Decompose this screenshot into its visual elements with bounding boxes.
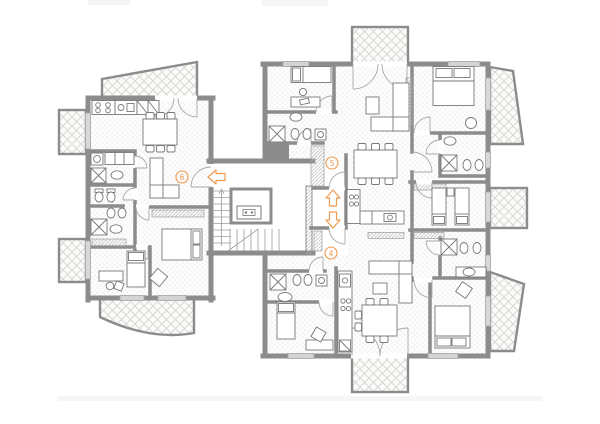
- floor-plan-canvas: 6 5 4: [0, 0, 600, 424]
- kitchen-sink-icon: [360, 211, 404, 224]
- single-bed-icon: [432, 188, 446, 225]
- window: [448, 62, 480, 67]
- wardrobe-icon: [314, 231, 322, 251]
- balcony: [59, 110, 86, 154]
- window: [288, 354, 314, 359]
- stove-icon: [92, 101, 115, 115]
- armchair-icon: [466, 118, 477, 129]
- window: [486, 192, 491, 222]
- hatched-wall: [306, 186, 312, 255]
- window: [486, 78, 491, 110]
- window: [86, 241, 91, 279]
- sink-icon: [444, 137, 456, 145]
- wardrobe-icon: [311, 146, 324, 186]
- wardrobe-icon: [368, 233, 404, 239]
- balcony: [352, 27, 408, 64]
- double-bed-icon: [162, 229, 202, 260]
- shower-icon: [441, 155, 457, 171]
- window: [486, 152, 491, 168]
- bathroom-counter-icon: [105, 153, 134, 165]
- shower-icon: [270, 274, 286, 290]
- wardrobe-icon: [152, 210, 204, 217]
- balcony: [102, 62, 197, 99]
- single-bed-icon: [277, 302, 295, 339]
- balcony: [490, 272, 524, 351]
- coffee-table-icon: [373, 283, 387, 294]
- nightstand-icon: [447, 188, 454, 196]
- washing-machine-icon: [91, 153, 103, 165]
- bidet-icon: [303, 129, 311, 140]
- toilet-icon: [95, 189, 103, 202]
- window: [158, 296, 186, 301]
- sink-icon: [456, 267, 486, 277]
- unit-6-label: 6: [180, 173, 185, 182]
- window: [428, 354, 458, 359]
- balcony: [100, 298, 194, 335]
- washing-machine-icon: [316, 275, 327, 286]
- elevator: [231, 189, 271, 223]
- sink-icon: [111, 171, 123, 179]
- washing-machine-icon: [315, 129, 326, 140]
- coffee-table-icon: [366, 97, 379, 114]
- single-bed-icon: [127, 251, 145, 287]
- dining-table-icon: [143, 113, 177, 153]
- kitchen-counter-icon: [338, 271, 352, 352]
- single-bed-icon: [291, 67, 331, 83]
- balcony: [490, 188, 527, 228]
- bidet-icon: [304, 275, 312, 286]
- wardrobe-icon: [414, 233, 444, 239]
- balcony: [490, 67, 523, 144]
- balcony: [352, 356, 408, 392]
- bidet-icon: [473, 243, 481, 254]
- window: [486, 296, 491, 326]
- window: [120, 296, 144, 301]
- double-bed-icon: [435, 306, 470, 348]
- kitchen-sink-icon: [115, 101, 137, 115]
- bidet-icon: [118, 208, 126, 218]
- shower-icon: [91, 168, 106, 183]
- sink-icon: [110, 225, 122, 233]
- toilet-icon: [291, 129, 299, 140]
- balcony: [59, 239, 86, 282]
- toilet-icon: [107, 208, 115, 218]
- single-bed-icon: [455, 188, 469, 225]
- bidet-icon: [475, 160, 483, 171]
- shower-icon: [91, 219, 107, 235]
- wall-pillar: [265, 143, 289, 163]
- unit-4-label: 4: [329, 249, 334, 258]
- sink-icon: [290, 113, 302, 121]
- toilet-icon: [460, 243, 468, 254]
- shower-icon: [269, 126, 285, 142]
- toilet-icon: [293, 275, 301, 286]
- toilet-icon: [463, 160, 471, 171]
- window: [283, 62, 309, 67]
- shower-icon: [441, 239, 457, 255]
- dining-table-icon: [354, 144, 397, 185]
- window: [86, 113, 91, 149]
- wardrobe-icon: [92, 239, 126, 246]
- double-bed-icon: [433, 67, 474, 106]
- sink-icon: [278, 293, 292, 302]
- stove-icon: [347, 190, 360, 224]
- unit-5-label: 5: [330, 159, 335, 168]
- bidet-icon: [107, 189, 115, 202]
